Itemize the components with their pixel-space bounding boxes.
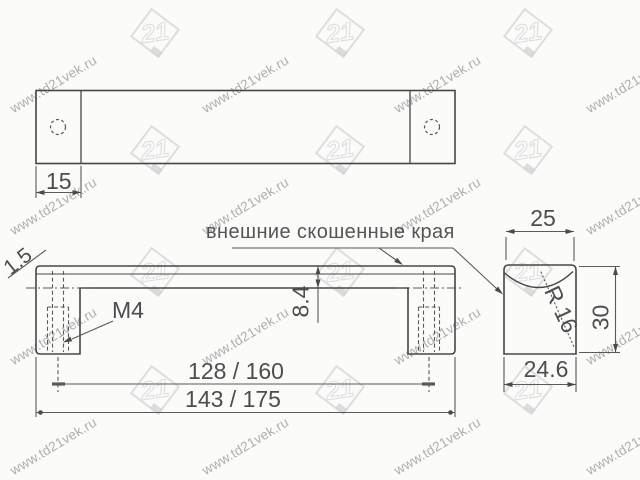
top-view — [36, 91, 455, 164]
front-view — [36, 266, 455, 354]
front-view-outline — [36, 266, 455, 354]
technical-drawing-canvas: www.td21vek.ruwww.td21vek.ruwww.td21vek.… — [0, 0, 640, 480]
dimension-25 — [506, 229, 574, 261]
threaded-hole-left — [48, 271, 69, 352]
dim-label-overall-length: 143 / 175 — [178, 388, 288, 411]
annotation-bevel-edges: внешние скошенные края — [206, 222, 455, 242]
threaded-hole-right — [419, 271, 440, 352]
m4-leader — [63, 321, 113, 343]
dim-label-hole-spacing: 128 / 160 — [181, 360, 291, 383]
dim-label-bar-height: 8.4 — [290, 280, 313, 324]
screw-hole-right — [425, 120, 440, 135]
screw-hole-left — [51, 120, 66, 135]
front-view-hidden-lines — [26, 271, 464, 352]
dim-label-end-cap-width: 15 — [46, 170, 72, 193]
dim-label-side-bottom-width: 24.6 — [516, 358, 576, 381]
top-view-body — [36, 91, 455, 164]
dim-label-side-height: 30 — [590, 295, 613, 341]
dim-label-side-top-width: 25 — [528, 207, 558, 230]
dim-label-thread: M4 — [112, 299, 144, 322]
